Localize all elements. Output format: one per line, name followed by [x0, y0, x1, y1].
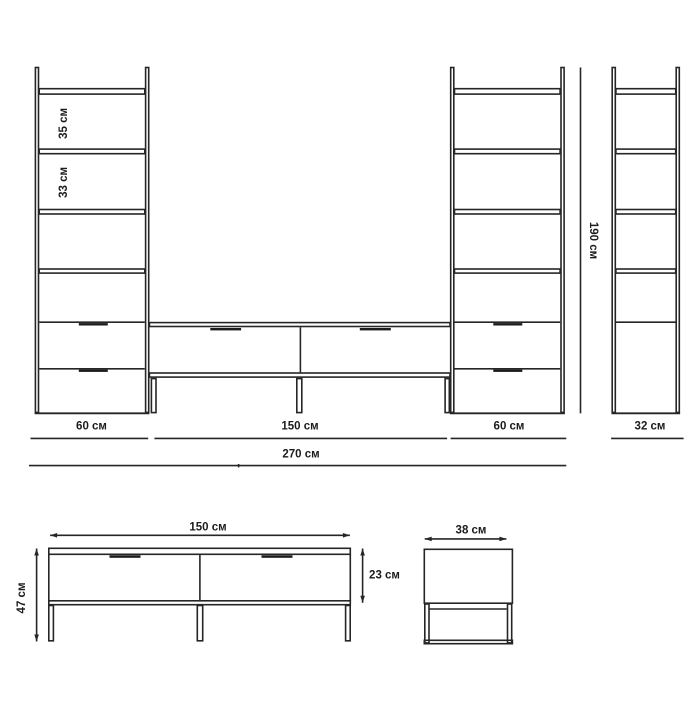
- svg-text:150 см: 150 см: [281, 421, 318, 433]
- svg-text:270 см: 270 см: [282, 449, 319, 461]
- svg-text:33 см: 33 см: [58, 167, 70, 198]
- svg-text:38 см: 38 см: [456, 524, 487, 536]
- svg-text:60 см: 60 см: [494, 421, 525, 433]
- svg-text:190 см: 190 см: [587, 222, 599, 259]
- svg-text:60 см: 60 см: [76, 421, 107, 433]
- svg-text:32 см: 32 см: [635, 421, 666, 433]
- svg-text:47 см: 47 см: [16, 583, 28, 614]
- svg-text:23 см: 23 см: [369, 569, 400, 581]
- svg-text:35 см: 35 см: [58, 108, 70, 139]
- svg-text:150 см: 150 см: [189, 521, 226, 533]
